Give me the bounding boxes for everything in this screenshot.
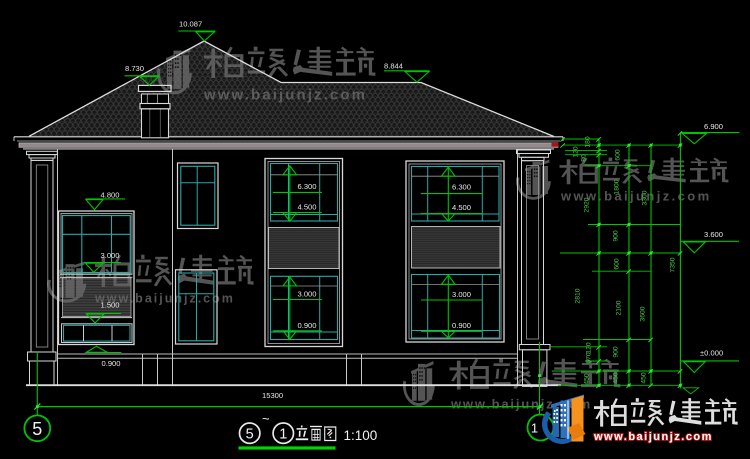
svg-text:8.730: 8.730 — [125, 64, 144, 73]
svg-text:6.900: 6.900 — [704, 122, 723, 131]
svg-text:1: 1 — [531, 421, 538, 436]
svg-text:600: 600 — [615, 149, 622, 161]
svg-text:3.000: 3.000 — [452, 290, 471, 299]
svg-text:1: 1 — [279, 426, 287, 442]
svg-text:2920: 2920 — [584, 197, 591, 212]
svg-text:4.500: 4.500 — [452, 203, 471, 212]
svg-text:80: 80 — [581, 154, 588, 162]
svg-text:3.000: 3.000 — [101, 251, 120, 260]
svg-text:120: 120 — [586, 342, 593, 354]
svg-text:4.500: 4.500 — [298, 203, 317, 212]
svg-text:1:100: 1:100 — [344, 428, 378, 443]
svg-text:8.844: 8.844 — [384, 61, 403, 70]
svg-text:7350: 7350 — [670, 257, 677, 272]
svg-text:4.800: 4.800 — [101, 190, 120, 199]
svg-text:2100: 2100 — [616, 300, 623, 315]
svg-text:0.900: 0.900 — [452, 321, 471, 330]
svg-text:6.300: 6.300 — [298, 182, 317, 191]
svg-text:www.baijunjz.com: www.baijunjz.com — [593, 431, 713, 443]
svg-text:1800: 1800 — [614, 179, 621, 194]
svg-text:3600: 3600 — [640, 306, 647, 321]
svg-text:450: 450 — [613, 372, 620, 384]
svg-text:±0.000: ±0.000 — [700, 348, 723, 357]
svg-text:3300: 3300 — [642, 190, 649, 205]
svg-text:670: 670 — [586, 352, 593, 364]
svg-text:5: 5 — [32, 419, 42, 439]
svg-text:0.900: 0.900 — [298, 321, 317, 330]
svg-text:6.300: 6.300 — [452, 183, 471, 192]
svg-text:10.087: 10.087 — [179, 20, 202, 29]
svg-text:180: 180 — [585, 136, 592, 148]
svg-text:900: 900 — [613, 230, 620, 242]
svg-text:3.600: 3.600 — [704, 230, 723, 239]
svg-text:5: 5 — [246, 426, 254, 442]
svg-text:0.900: 0.900 — [102, 359, 121, 368]
svg-text:900: 900 — [613, 346, 620, 358]
svg-text:3.000: 3.000 — [298, 290, 317, 299]
svg-text:450: 450 — [584, 373, 591, 385]
svg-text:600: 600 — [614, 258, 621, 270]
svg-text:1.500: 1.500 — [101, 301, 120, 310]
svg-text:~: ~ — [262, 411, 270, 426]
svg-text:www.baijunjz.com: www.baijunjz.com — [203, 87, 367, 104]
svg-text:15300: 15300 — [262, 391, 283, 400]
svg-text:2810: 2810 — [575, 288, 582, 303]
svg-text:120: 120 — [573, 146, 580, 158]
svg-text:450: 450 — [641, 372, 648, 384]
